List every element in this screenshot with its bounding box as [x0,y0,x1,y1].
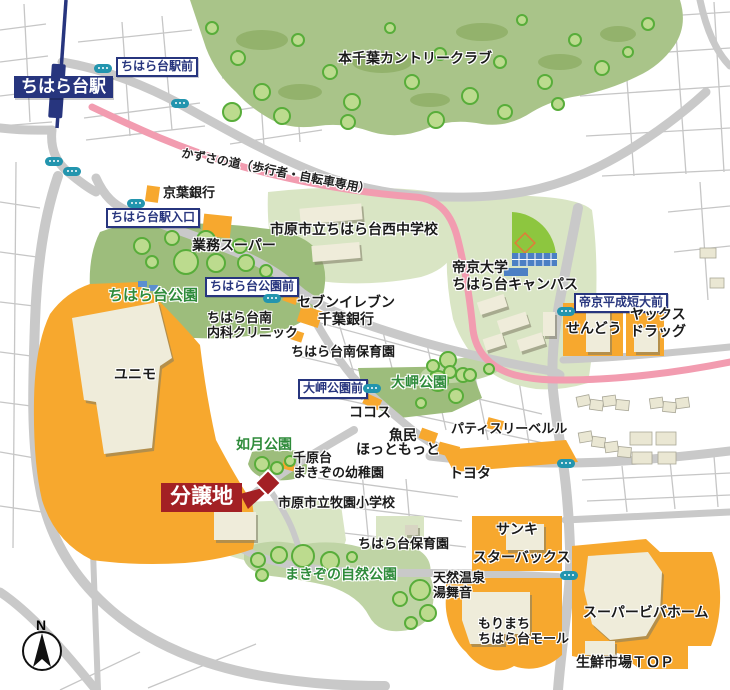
gyomu-super-label: 業務スーパー [192,237,276,254]
toyota-label: トヨタ [449,465,491,482]
keiyo-bank-label: 京葉銀行 [163,185,215,200]
makizono-elementary-label: 市原市立牧園小学校 [278,495,395,510]
morimachi-mall-label: もりまち ちはら台モール [478,616,569,647]
chiba-bank-label: 千葉銀行 [318,311,374,328]
bus-stop-icon [127,199,145,208]
honchiba-country-club-label: 本千葉カントリークラブ [338,50,492,67]
yacks-drug-label: ヤックス ドラッグ [630,306,686,339]
bus-stop-icon [263,294,281,303]
kisaragi-park-label: 如月公園 [236,436,292,453]
bus-label-koen-mae: ちはら台公園前 [205,277,299,297]
bus-stop-icon [363,384,381,393]
unimo-label: ユニモ [114,366,156,383]
bus-stop-icon [45,157,63,166]
teikyo-campus-label: 帝京大学 ちはら台キャンパス [452,259,578,292]
starbucks-label: スターバックス [473,549,570,566]
super-viva-home-label: スーパービバホーム [583,604,708,621]
cocos-label: ココス [349,404,391,421]
nishi-junior-high-label: 市原市立ちはら台西中学校 [270,221,438,238]
top-market-label: 生鮮市場ＴＯＰ [576,654,674,671]
bus-label-omisaki-mae: 大岬公園前 [298,379,368,399]
bus-stop-icon [171,99,189,108]
compass-n-label: N [36,617,46,634]
makizono-nature-park-label: まきぞの自然公園 [285,566,397,583]
patisserie-belle-label: パティスリーベルル [451,421,567,436]
bus-stop-icon [557,459,575,468]
bus-label-eki-iriguchi: ちはら台駅入口 [106,208,200,228]
minami-hoikuen-label: ちはら台南保育園 [291,344,395,359]
chiharadai-hoikuen-label: ちはら台保育園 [358,536,449,551]
bus-stop-icon [63,167,81,176]
bus-stop-icon [560,571,578,580]
makizono-yochien-label: 千原台 まきぞの幼稚園 [293,450,384,481]
sendo-label: せんどう [566,320,622,337]
bus-label-chiharadai-ekimae: ちはら台駅前 [116,57,198,77]
bus-stop-icon [94,64,112,73]
sanki-label: サンキ [496,521,538,538]
bus-stop-icon [557,307,575,316]
omisaki-park-label: 大岬公園 [391,374,447,391]
map-labels-layer: ちはら台駅ちはら台駅前本千葉カントリークラブかずさの道（歩行者・自転車専用）京葉… [0,0,730,690]
chiharadai-park-label: ちはら台公園 [108,287,198,305]
lot-label: 分譲地 [161,483,242,512]
naika-clinic-label: ちはら台南 内科クリニック [207,310,298,341]
onsen-yubune-label: 天然温泉 湯舞音 [433,570,485,601]
area-access-map: ちはら台駅ちはら台駅前本千葉カントリークラブかずさの道（歩行者・自転車専用）京葉… [0,0,730,690]
station-name-label: ちはら台駅 [14,76,113,98]
seven-eleven-label: セブンイレブン [297,294,395,311]
